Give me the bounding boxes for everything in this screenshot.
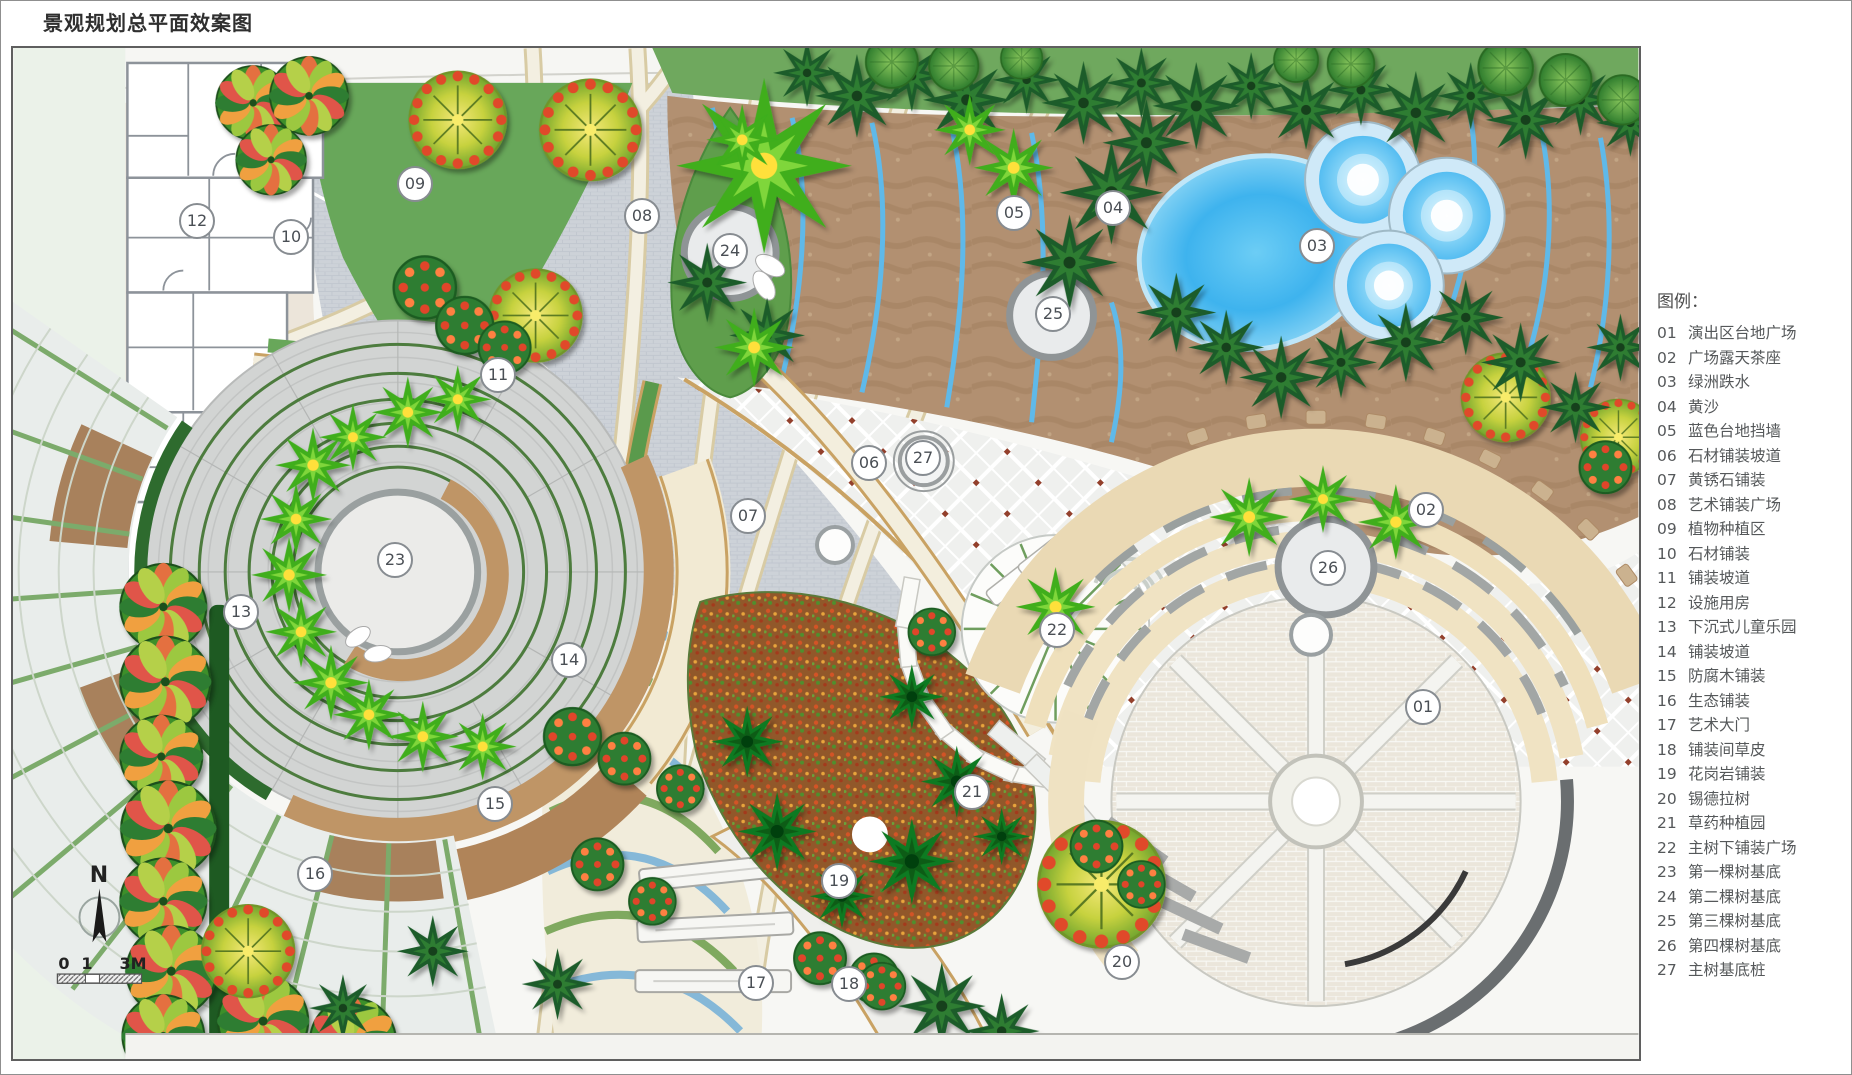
page-title: 景观规划总平面效案图: [43, 7, 253, 36]
legend-item-10: 10石材铺装: [1657, 542, 1849, 567]
legend-item-09: 09植物种植区: [1657, 517, 1849, 542]
plan-marker-23: 23: [377, 542, 413, 578]
plan-marker-01: 01: [1405, 689, 1441, 725]
legend-item-04: 04黄沙: [1657, 395, 1849, 420]
plan-marker-17: 17: [738, 965, 774, 1001]
plan-marker-21: 21: [954, 774, 990, 810]
scale-one-label: 1: [81, 954, 92, 973]
plan-marker-26: 26: [1310, 550, 1346, 586]
legend-items: 01演出区台地广场02广场露天茶座03绿洲跌水04黄沙05蓝色台地挡墙06石材铺…: [1657, 321, 1849, 983]
legend-item-01: 01演出区台地广场: [1657, 321, 1849, 346]
plan-marker-20: 20: [1104, 944, 1140, 980]
legend-item-20: 20锡德拉树: [1657, 787, 1849, 812]
plan-marker-18: 18: [831, 966, 867, 1002]
scale-3m-label: 3M: [119, 954, 146, 973]
legend-item-05: 05蓝色台地挡墙: [1657, 419, 1849, 444]
plan-marker-06: 06: [851, 445, 887, 481]
legend-item-03: 03绿洲跌水: [1657, 370, 1849, 395]
legend-item-27: 27主树基底桩: [1657, 958, 1849, 983]
legend-item-12: 12设施用房: [1657, 591, 1849, 616]
plan-marker-02: 02: [1408, 492, 1444, 528]
legend-item-07: 07黄锈石铺装: [1657, 468, 1849, 493]
plan-marker-08: 08: [624, 198, 660, 234]
legend-item-22: 22主树下铺装广场: [1657, 836, 1849, 861]
legend-item-17: 17艺术大门: [1657, 713, 1849, 738]
plan-marker-13: 13: [223, 594, 259, 630]
plan-marker-11: 11: [480, 357, 516, 393]
legend-item-21: 21草药种植园: [1657, 811, 1849, 836]
legend-title: 图例：: [1657, 287, 1849, 312]
plan-marker-27: 27: [905, 440, 941, 476]
plan-marker-09: 09: [397, 166, 433, 202]
plan-marker-12: 12: [179, 203, 215, 239]
plan-marker-15: 15: [477, 786, 513, 822]
legend-item-06: 06石材铺装坡道: [1657, 444, 1849, 469]
legend-item-26: 26第四棵树基底: [1657, 934, 1849, 959]
plan-marker-25: 25: [1035, 296, 1071, 332]
north-label: N: [90, 863, 108, 888]
plan-marker-10: 10: [273, 219, 309, 255]
legend-item-11: 11铺装坡道: [1657, 566, 1849, 591]
plan-markers: 0102030405060708091011121314151617181920…: [13, 48, 1639, 1059]
plan-marker-24: 24: [712, 233, 748, 269]
scale-zero-label: 0: [58, 954, 69, 973]
plan-marker-07: 07: [730, 498, 766, 534]
legend-item-14: 14铺装坡道: [1657, 640, 1849, 665]
legend-item-08: 08艺术铺装广场: [1657, 493, 1849, 518]
plan-marker-22: 22: [1039, 612, 1075, 648]
plan-marker-05: 05: [996, 195, 1032, 231]
legend: 图例： 01演出区台地广场02广场露天茶座03绿洲跌水04黄沙05蓝色台地挡墙0…: [1657, 287, 1849, 983]
legend-item-25: 25第三棵树基底: [1657, 909, 1849, 934]
legend-item-18: 18铺装间草皮: [1657, 738, 1849, 763]
site-plan: 0102030405060708091011121314151617181920…: [11, 46, 1641, 1061]
legend-item-16: 16生态铺装: [1657, 689, 1849, 714]
legend-item-19: 19花岗岩铺装: [1657, 762, 1849, 787]
plan-marker-14: 14: [551, 642, 587, 678]
legend-item-23: 23第一棵树基底: [1657, 860, 1849, 885]
legend-item-02: 02广场露天茶座: [1657, 346, 1849, 371]
plan-marker-19: 19: [821, 863, 857, 899]
canvas: 景观规划总平面效案图: [0, 0, 1852, 1075]
plan-marker-04: 04: [1095, 190, 1131, 226]
legend-item-24: 24第二棵树基底: [1657, 885, 1849, 910]
plan-marker-03: 03: [1299, 228, 1335, 264]
legend-item-15: 15防腐木铺装: [1657, 664, 1849, 689]
plan-marker-16: 16: [297, 856, 333, 892]
legend-item-13: 13下沉式儿童乐园: [1657, 615, 1849, 640]
